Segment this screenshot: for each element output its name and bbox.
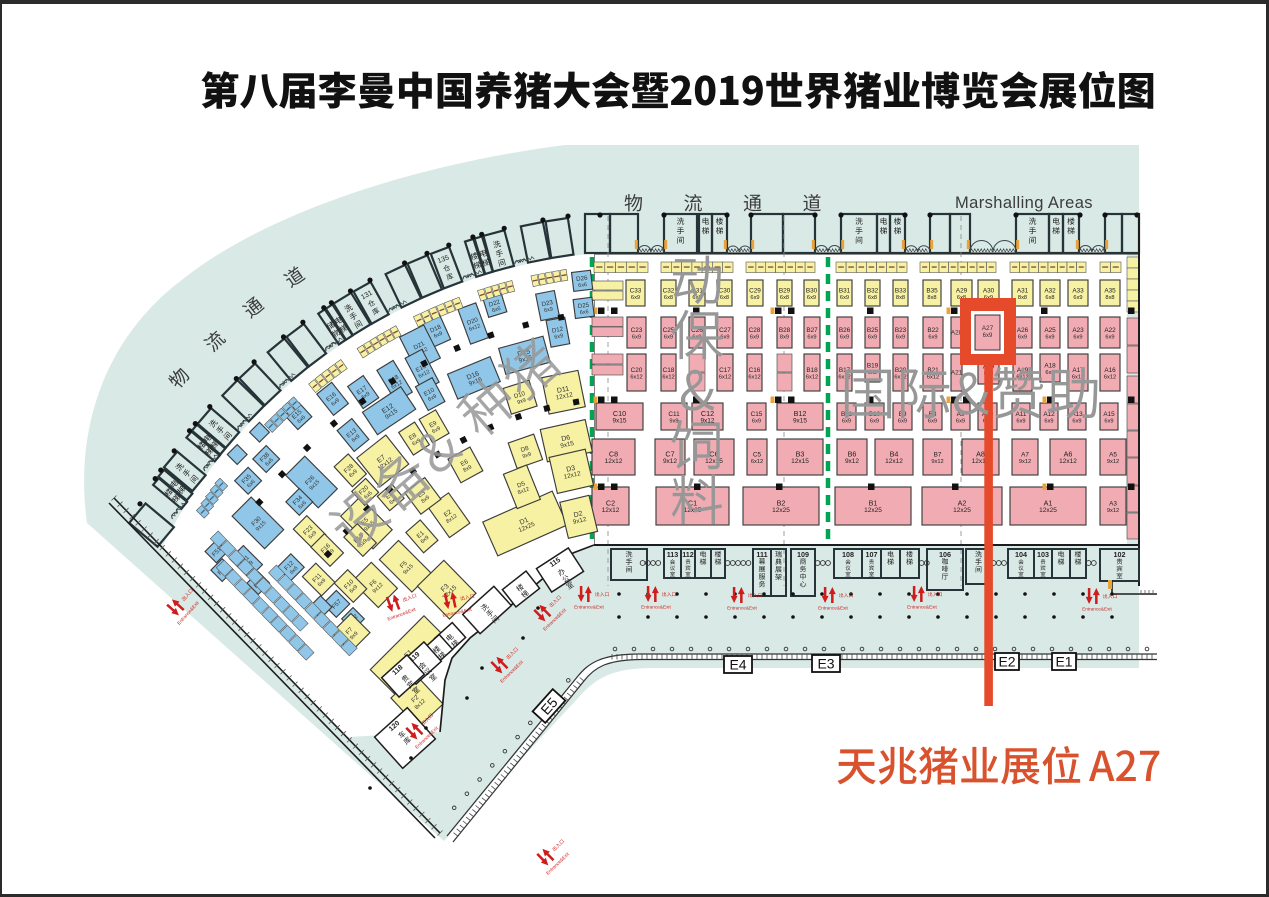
svg-text:C23: C23 — [631, 327, 643, 334]
svg-text:A29: A29 — [956, 287, 968, 294]
svg-text:C33: C33 — [630, 287, 642, 294]
svg-text:6x9: 6x9 — [1104, 419, 1113, 425]
svg-text:C16: C16 — [749, 367, 761, 374]
svg-text:C30: C30 — [719, 287, 731, 294]
svg-text:A3: A3 — [1109, 500, 1117, 507]
svg-text:6x9: 6x9 — [1072, 419, 1081, 425]
svg-text:6x9: 6x9 — [928, 335, 937, 341]
svg-text:A33: A33 — [1072, 287, 1084, 294]
svg-text:B19: B19 — [867, 362, 879, 369]
svg-text:107: 107 — [866, 550, 878, 559]
svg-text:6x9: 6x9 — [1105, 335, 1114, 341]
svg-text:C18: C18 — [663, 367, 675, 374]
svg-text:12x15: 12x15 — [705, 458, 723, 465]
svg-text:C28: C28 — [749, 327, 761, 334]
svg-text:12x25: 12x25 — [1039, 507, 1057, 514]
svg-text:A15: A15 — [1103, 411, 1115, 418]
svg-text:12x15: 12x15 — [791, 458, 809, 465]
svg-text:6x9: 6x9 — [956, 419, 965, 425]
svg-text:6x12: 6x12 — [748, 375, 760, 381]
svg-text:B28: B28 — [779, 327, 791, 334]
svg-text:A30: A30 — [983, 287, 995, 294]
svg-text:C27: C27 — [719, 327, 731, 334]
svg-text:12x25: 12x25 — [953, 507, 971, 514]
svg-text:12x12: 12x12 — [605, 458, 623, 465]
svg-text:6x9: 6x9 — [631, 295, 640, 301]
svg-text:9x12: 9x12 — [1107, 459, 1119, 465]
svg-text:Marshalling Areas: Marshalling Areas — [955, 194, 1093, 212]
svg-text:6x9: 6x9 — [1018, 335, 1027, 341]
svg-text:6x9: 6x9 — [1045, 335, 1054, 341]
svg-text:C29: C29 — [749, 287, 761, 294]
svg-text:8x8: 8x8 — [896, 295, 905, 301]
svg-text:104: 104 — [1015, 550, 1027, 559]
svg-text:9x12: 9x12 — [845, 458, 859, 465]
svg-text:6x8: 6x8 — [780, 295, 789, 301]
svg-text:A26: A26 — [1017, 327, 1029, 334]
svg-text:9x12: 9x12 — [1107, 508, 1119, 514]
svg-text:6x6: 6x6 — [578, 282, 588, 289]
svg-text:108: 108 — [842, 550, 854, 559]
svg-text:111: 111 — [756, 550, 767, 559]
svg-text:6x6: 6x6 — [580, 309, 590, 316]
svg-text:8x8: 8x8 — [927, 295, 936, 301]
svg-text:6x9: 6x9 — [1073, 335, 1082, 341]
svg-text:B27: B27 — [806, 327, 818, 334]
svg-text:6x9: 6x9 — [840, 295, 849, 301]
svg-text:113: 113 — [667, 550, 679, 559]
svg-text:A16: A16 — [1104, 367, 1116, 374]
svg-text:6x9: 6x9 — [750, 335, 759, 341]
svg-text:A21: A21 — [951, 370, 963, 377]
svg-text:6x12: 6x12 — [630, 375, 642, 381]
svg-text:6x9: 6x9 — [983, 333, 993, 339]
svg-text:Entrance&Exit: Entrance&Exit — [641, 605, 671, 610]
svg-text:6x9: 6x9 — [632, 335, 641, 341]
svg-text:B23: B23 — [895, 327, 907, 334]
svg-text:6x9: 6x9 — [840, 335, 849, 341]
svg-text:6x12: 6x12 — [1104, 375, 1116, 381]
svg-text:C17: C17 — [719, 367, 731, 374]
svg-text:A22: A22 — [1104, 327, 1116, 334]
svg-text:B29: B29 — [779, 287, 791, 294]
svg-text:C15: C15 — [751, 411, 763, 418]
svg-text:9x15: 9x15 — [612, 418, 626, 425]
svg-text:B25: B25 — [867, 327, 879, 334]
svg-text:C32: C32 — [663, 287, 675, 294]
svg-text:6x12: 6x12 — [662, 375, 674, 381]
svg-text:9x12: 9x12 — [931, 459, 943, 465]
svg-text:6x8: 6x8 — [868, 295, 877, 301]
svg-text:Entrance&Exit: Entrance&Exit — [907, 605, 937, 610]
svg-text:6x9: 6x9 — [870, 419, 879, 425]
svg-text:6x9: 6x9 — [807, 295, 816, 301]
svg-text:9x12: 9x12 — [1019, 459, 1031, 465]
svg-text:106: 106 — [939, 550, 951, 559]
svg-text:A27: A27 — [982, 325, 994, 332]
svg-text:A31: A31 — [1017, 287, 1029, 294]
svg-text:Entrance&Exit: Entrance&Exit — [1082, 607, 1112, 612]
svg-text:C5: C5 — [753, 451, 762, 458]
svg-text:Entrance&Exit: Entrance&Exit — [574, 605, 604, 610]
svg-text:B35: B35 — [926, 287, 938, 294]
svg-text:12x25: 12x25 — [864, 507, 882, 514]
svg-text:12x25: 12x25 — [772, 507, 790, 514]
svg-text:B31: B31 — [839, 287, 851, 294]
svg-text:6x9: 6x9 — [807, 335, 816, 341]
svg-text:Entrance&Exit: Entrance&Exit — [727, 606, 757, 611]
svg-text:6x9: 6x9 — [664, 335, 673, 341]
svg-text:102: 102 — [1114, 550, 1126, 559]
svg-text:6x8: 6x8 — [1045, 295, 1054, 301]
svg-text:B7: B7 — [934, 451, 942, 458]
svg-text:A18: A18 — [1044, 362, 1056, 369]
svg-text:6x12: 6x12 — [894, 375, 906, 381]
svg-text:6x12: 6x12 — [838, 375, 850, 381]
svg-text:A5: A5 — [1109, 451, 1117, 458]
svg-text:B18: B18 — [806, 367, 818, 374]
svg-text:B22: B22 — [927, 327, 939, 334]
svg-text:6x9: 6x9 — [750, 295, 759, 301]
svg-text:E1: E1 — [1055, 654, 1072, 670]
svg-text:B32: B32 — [867, 287, 879, 294]
svg-text:E4: E4 — [729, 657, 746, 673]
svg-text:8x8: 8x8 — [1105, 295, 1114, 301]
svg-text:6x8: 6x8 — [720, 295, 729, 301]
svg-text:A23: A23 — [1072, 327, 1084, 334]
svg-text:103: 103 — [1037, 550, 1049, 559]
svg-text:6x9: 6x9 — [868, 335, 877, 341]
svg-text:8x8: 8x8 — [1018, 295, 1027, 301]
svg-text:B26: B26 — [839, 327, 851, 334]
svg-text:A35: A35 — [1104, 287, 1116, 294]
svg-text:Entrance&Exit: Entrance&Exit — [818, 606, 848, 611]
svg-text:12x12: 12x12 — [1059, 458, 1077, 465]
svg-text:6x9: 6x9 — [842, 419, 851, 425]
svg-text:112: 112 — [682, 550, 694, 559]
svg-text:6x12: 6x12 — [806, 375, 818, 381]
svg-text:A25: A25 — [1044, 327, 1056, 334]
svg-text:6x9: 6x9 — [898, 419, 907, 425]
svg-text:8x9: 8x9 — [780, 335, 789, 341]
svg-text:A7: A7 — [1021, 451, 1029, 458]
svg-text:B33: B33 — [895, 287, 907, 294]
svg-text:9x9: 9x9 — [669, 419, 678, 425]
svg-text:6x9: 6x9 — [1073, 295, 1082, 301]
svg-text:6x12: 6x12 — [751, 459, 763, 465]
svg-text:6x9: 6x9 — [896, 335, 905, 341]
svg-text:6x9: 6x9 — [752, 419, 761, 425]
svg-text:6x12: 6x12 — [719, 375, 731, 381]
svg-text:6x12: 6x12 — [927, 375, 939, 381]
svg-text:9x15: 9x15 — [793, 418, 807, 425]
svg-text:E2: E2 — [998, 654, 1015, 670]
svg-text:109: 109 — [797, 550, 809, 559]
svg-text:B30: B30 — [806, 287, 818, 294]
svg-text:9x12: 9x12 — [663, 458, 677, 465]
svg-text:6x9: 6x9 — [1016, 419, 1025, 425]
svg-text:6x8: 6x8 — [664, 295, 673, 301]
svg-text:C20: C20 — [631, 367, 643, 374]
svg-text:6x9: 6x9 — [1044, 419, 1053, 425]
svg-text:C11: C11 — [668, 411, 680, 418]
svg-text:6x9: 6x9 — [720, 335, 729, 341]
svg-text:12x12: 12x12 — [602, 507, 620, 514]
svg-text:E3: E3 — [817, 656, 834, 672]
svg-text:12x12: 12x12 — [885, 458, 903, 465]
svg-text:A32: A32 — [1044, 287, 1056, 294]
svg-text:6x9: 6x9 — [928, 419, 937, 425]
